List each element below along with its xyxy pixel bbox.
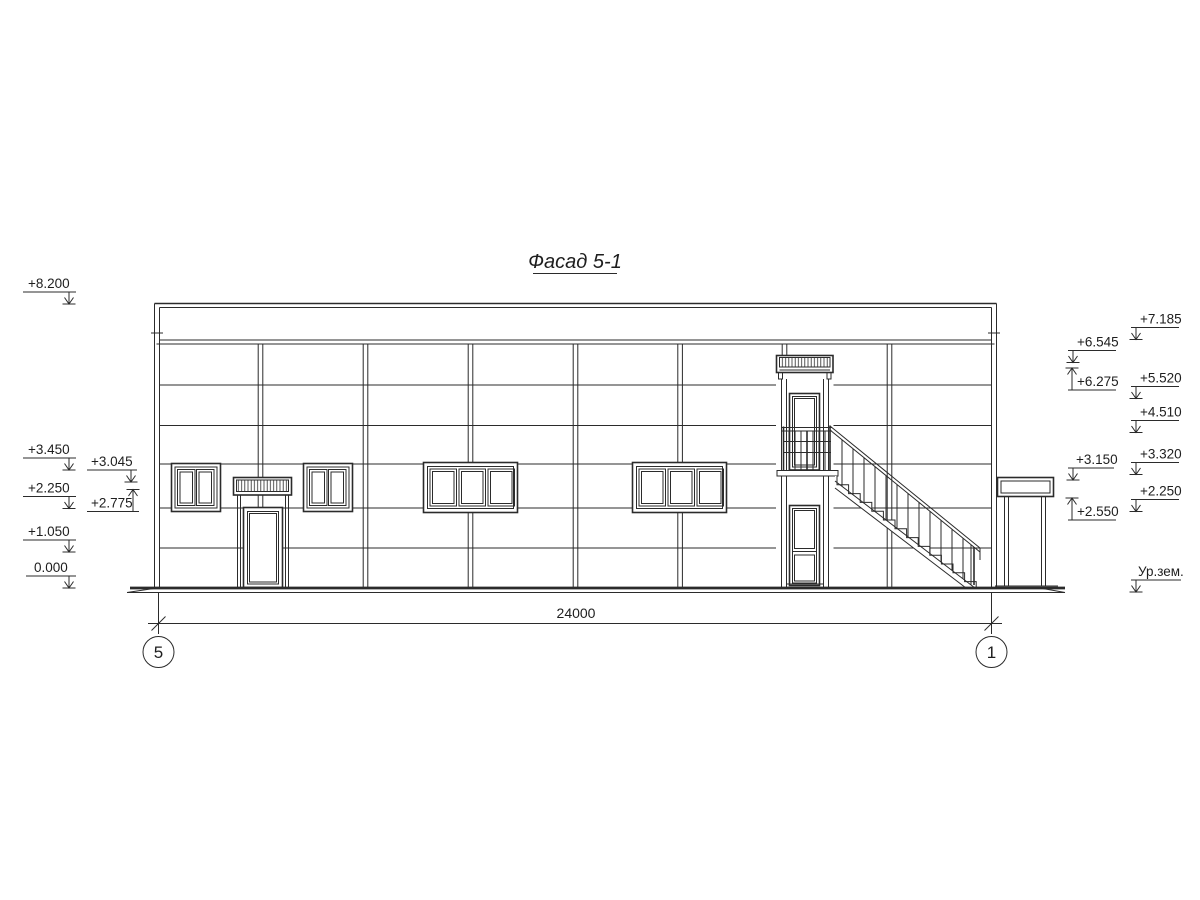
stair-tower: [776, 355, 838, 587]
page-title: Фасад 5-1: [528, 251, 622, 273]
svg-text:+2.250: +2.250: [28, 481, 70, 496]
elevation-marks-right-outer: +7.185 +5.520 +4.510 +3.320 +2.250 Ур.зе…: [1130, 312, 1184, 593]
elevation-mark: +7.185: [1130, 312, 1182, 340]
balcony-platform: [777, 471, 838, 477]
elevation-mark: +6.275: [1066, 368, 1119, 390]
window-left-2: [304, 464, 353, 512]
svg-text:+1.050: +1.050: [28, 524, 70, 539]
svg-text:+3.450: +3.450: [28, 442, 70, 457]
stair-tower-upper-door: [790, 394, 820, 471]
svg-text:+7.185: +7.185: [1140, 312, 1182, 327]
entrance-left-canopy: [234, 478, 292, 496]
elevation-mark: +4.510: [1130, 405, 1182, 433]
wall-panel-joint-lines: [160, 385, 991, 548]
axis-label-1: 1: [987, 643, 996, 662]
ground-line: [127, 588, 1065, 593]
elevation-mark: 0.000: [26, 560, 76, 588]
facade-drawing-sheet: 24000 5 1 +8.200 +3.450 +2.250 +1.050: [0, 0, 1200, 900]
elevation-mark: +6.545: [1067, 335, 1119, 363]
elevation-mark: +2.250: [23, 481, 76, 509]
stair-railing: [830, 426, 980, 585]
elevation-mark: +3.320: [1130, 447, 1182, 475]
elevation-mark: +5.520: [1130, 371, 1182, 399]
axis-label-5: 5: [154, 643, 163, 662]
side-canopy-right: [995, 478, 1058, 587]
elevation-marks-left-outer: +8.200 +3.450 +2.250 +1.050 0.000: [23, 276, 76, 588]
elevation-mark: +2.775: [87, 490, 140, 512]
elevation-marks-right-inner: +6.545 +6.275 +3.150 +2.550: [1066, 335, 1119, 521]
svg-text:+2.550: +2.550: [1077, 504, 1119, 519]
elevation-mark: +3.150: [1067, 452, 1118, 480]
elevation-mark: +1.050: [23, 524, 76, 552]
svg-text:+6.275: +6.275: [1077, 374, 1119, 389]
balcony-railing: [782, 426, 832, 473]
axis-bubble-1: 1: [976, 637, 1007, 668]
axis-bubble-5: 5: [143, 637, 174, 668]
svg-text:+3.320: +3.320: [1140, 447, 1182, 462]
window-mid-1: [424, 463, 518, 513]
facade-elevation-5-1: 24000 5 1 +8.200 +3.450 +2.250 +1.050: [0, 0, 1200, 900]
svg-text:+2.250: +2.250: [1140, 484, 1182, 499]
elevation-mark: +2.250: [1130, 484, 1182, 512]
svg-text:+6.545: +6.545: [1077, 335, 1119, 350]
elevation-mark: +2.550: [1066, 498, 1119, 520]
elevation-mark-ground-level: Ур.зем.: [1130, 564, 1184, 592]
svg-text:0.000: 0.000: [34, 560, 68, 575]
elevation-mark: +8.200: [23, 276, 76, 304]
elevation-marks-left-inner: +3.045 +2.775: [87, 454, 140, 512]
window-left-1: [172, 464, 221, 512]
drawing-title: Фасад 5-1: [528, 251, 622, 274]
stair-tower-lower-door: [787, 506, 824, 586]
elevation-mark: +3.045: [87, 454, 138, 482]
svg-text:+4.510: +4.510: [1140, 405, 1182, 420]
fire-escape-stair: [830, 426, 980, 588]
dimension-assembly: 24000 5 1: [143, 593, 1007, 668]
window-mid-2: [633, 463, 727, 513]
svg-text:+3.045: +3.045: [91, 454, 133, 469]
entrance-left-door: [244, 508, 283, 588]
elevation-mark: +3.450: [23, 442, 76, 470]
stair-stringer: [835, 481, 975, 588]
dimension-total: 24000: [557, 605, 596, 621]
svg-text:+3.150: +3.150: [1076, 452, 1118, 467]
svg-text:+5.520: +5.520: [1140, 371, 1182, 386]
svg-text:+8.200: +8.200: [28, 276, 70, 291]
svg-text:Ур.зем.: Ур.зем.: [1138, 564, 1184, 579]
svg-text:+2.775: +2.775: [91, 496, 133, 511]
entrance-left: [234, 478, 292, 588]
